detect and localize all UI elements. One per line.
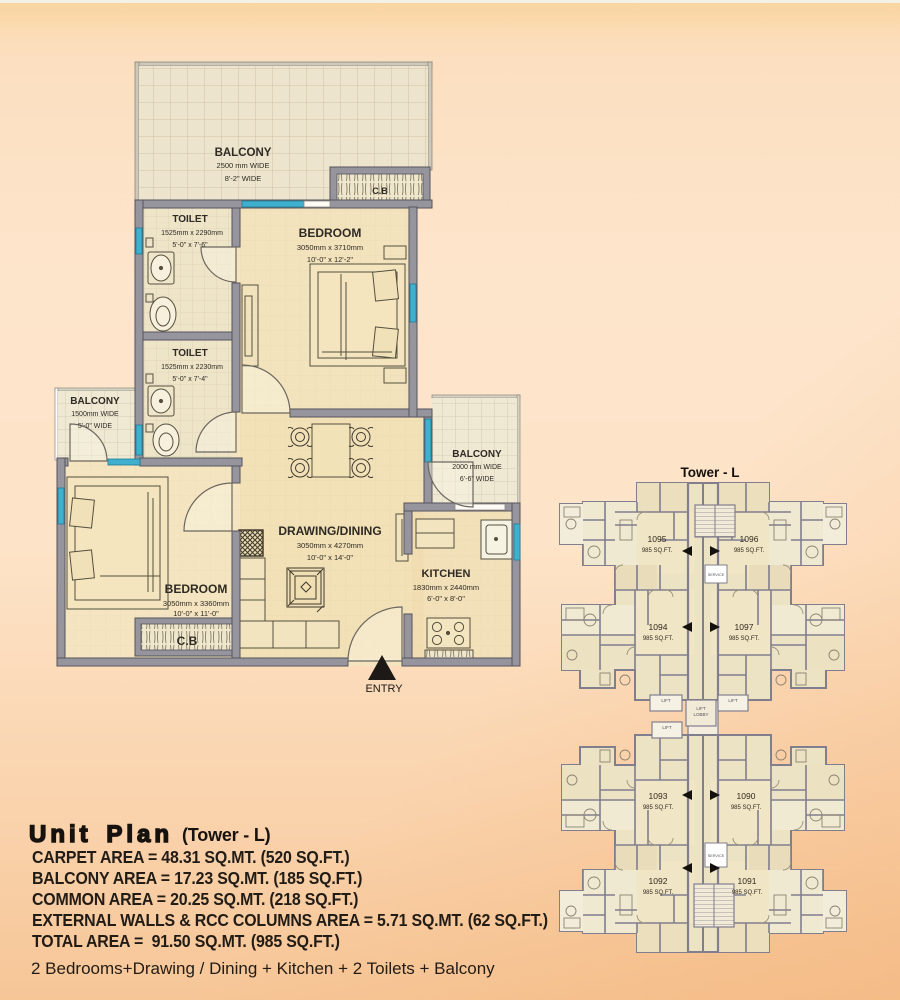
- svg-text:6'-6" WIDE: 6'-6" WIDE: [460, 476, 494, 483]
- svg-text:5'-0" x 7'-4": 5'-0" x 7'-4": [172, 376, 208, 383]
- svg-text:SERVICE: SERVICE: [708, 854, 725, 858]
- svg-text:TOILET: TOILET: [172, 214, 207, 225]
- svg-text:1096: 1096: [740, 534, 759, 544]
- svg-text:10'-0" x 14'-0": 10'-0" x 14'-0": [307, 553, 353, 562]
- svg-text:1091: 1091: [738, 876, 757, 886]
- svg-text:985 SQ.FT.: 985 SQ.FT.: [734, 548, 765, 554]
- svg-text:LIFT: LIFT: [662, 725, 672, 730]
- svg-text:SERVICE: SERVICE: [708, 573, 725, 577]
- svg-text:2500 mm WIDE: 2500 mm WIDE: [217, 161, 270, 170]
- svg-text:TOILET: TOILET: [172, 348, 207, 359]
- svg-text:C.B: C.B: [372, 186, 388, 196]
- svg-text:5'-0" WIDE: 5'-0" WIDE: [78, 423, 112, 430]
- svg-text:2000 mm WIDE: 2000 mm WIDE: [452, 464, 502, 471]
- svg-text:1500mm WIDE: 1500mm WIDE: [71, 411, 119, 418]
- svg-text:985 SQ.FT.: 985 SQ.FT.: [642, 548, 673, 554]
- svg-text:8'-2" WIDE: 8'-2" WIDE: [225, 174, 262, 183]
- svg-text:LIFT: LIFT: [661, 698, 671, 703]
- svg-text:BEDROOM: BEDROOM: [299, 226, 362, 240]
- svg-text:BEDROOM: BEDROOM: [165, 582, 228, 596]
- svg-text:985 SQ.FT.: 985 SQ.FT.: [732, 890, 763, 896]
- svg-text:BALCONY: BALCONY: [70, 396, 120, 407]
- svg-text:985 SQ.FT.: 985 SQ.FT.: [729, 636, 760, 642]
- svg-text:ENTRY: ENTRY: [365, 683, 403, 695]
- svg-text:BALCONY: BALCONY: [452, 449, 502, 460]
- svg-text:1094: 1094: [649, 622, 668, 632]
- svg-text:6'-0" x 8'-0": 6'-0" x 8'-0": [427, 594, 465, 603]
- svg-text:1830mm x 2440mm: 1830mm x 2440mm: [413, 583, 479, 592]
- svg-text:985 SQ.FT.: 985 SQ.FT.: [731, 805, 762, 811]
- svg-text:3050mm x 4270mm: 3050mm x 4270mm: [297, 541, 363, 550]
- svg-text:LOBBY: LOBBY: [693, 712, 708, 717]
- svg-text:10'-0" x 11'-0": 10'-0" x 11'-0": [173, 609, 219, 618]
- svg-text:C.B: C.B: [177, 634, 198, 648]
- svg-text:DRAWING/DINING: DRAWING/DINING: [278, 524, 381, 538]
- svg-text:5'-0" x 7'-6": 5'-0" x 7'-6": [172, 242, 208, 249]
- svg-text:3050mm x 3360mm: 3050mm x 3360mm: [163, 599, 229, 608]
- svg-text:BALCONY: BALCONY: [215, 147, 272, 159]
- svg-text:LIFT: LIFT: [696, 706, 706, 711]
- svg-text:10'-0" x 12'-2": 10'-0" x 12'-2": [307, 255, 353, 264]
- svg-text:985 SQ.FT.: 985 SQ.FT.: [643, 890, 674, 896]
- svg-text:3050mm x 3710mm: 3050mm x 3710mm: [297, 243, 363, 252]
- svg-text:1095: 1095: [648, 534, 667, 544]
- svg-text:985 SQ.FT.: 985 SQ.FT.: [643, 805, 674, 811]
- svg-text:LIFT: LIFT: [728, 698, 738, 703]
- svg-text:1090: 1090: [737, 791, 756, 801]
- svg-text:1525mm x 2290mm: 1525mm x 2290mm: [161, 230, 223, 237]
- svg-text:1525mm x 2230mm: 1525mm x 2230mm: [161, 364, 223, 371]
- svg-text:Tower - L: Tower - L: [681, 465, 740, 480]
- svg-text:1092: 1092: [649, 876, 668, 886]
- svg-text:985 SQ.FT.: 985 SQ.FT.: [643, 636, 674, 642]
- svg-text:1097: 1097: [735, 622, 754, 632]
- svg-text:1093: 1093: [649, 791, 668, 801]
- svg-text:KITCHEN: KITCHEN: [422, 568, 471, 580]
